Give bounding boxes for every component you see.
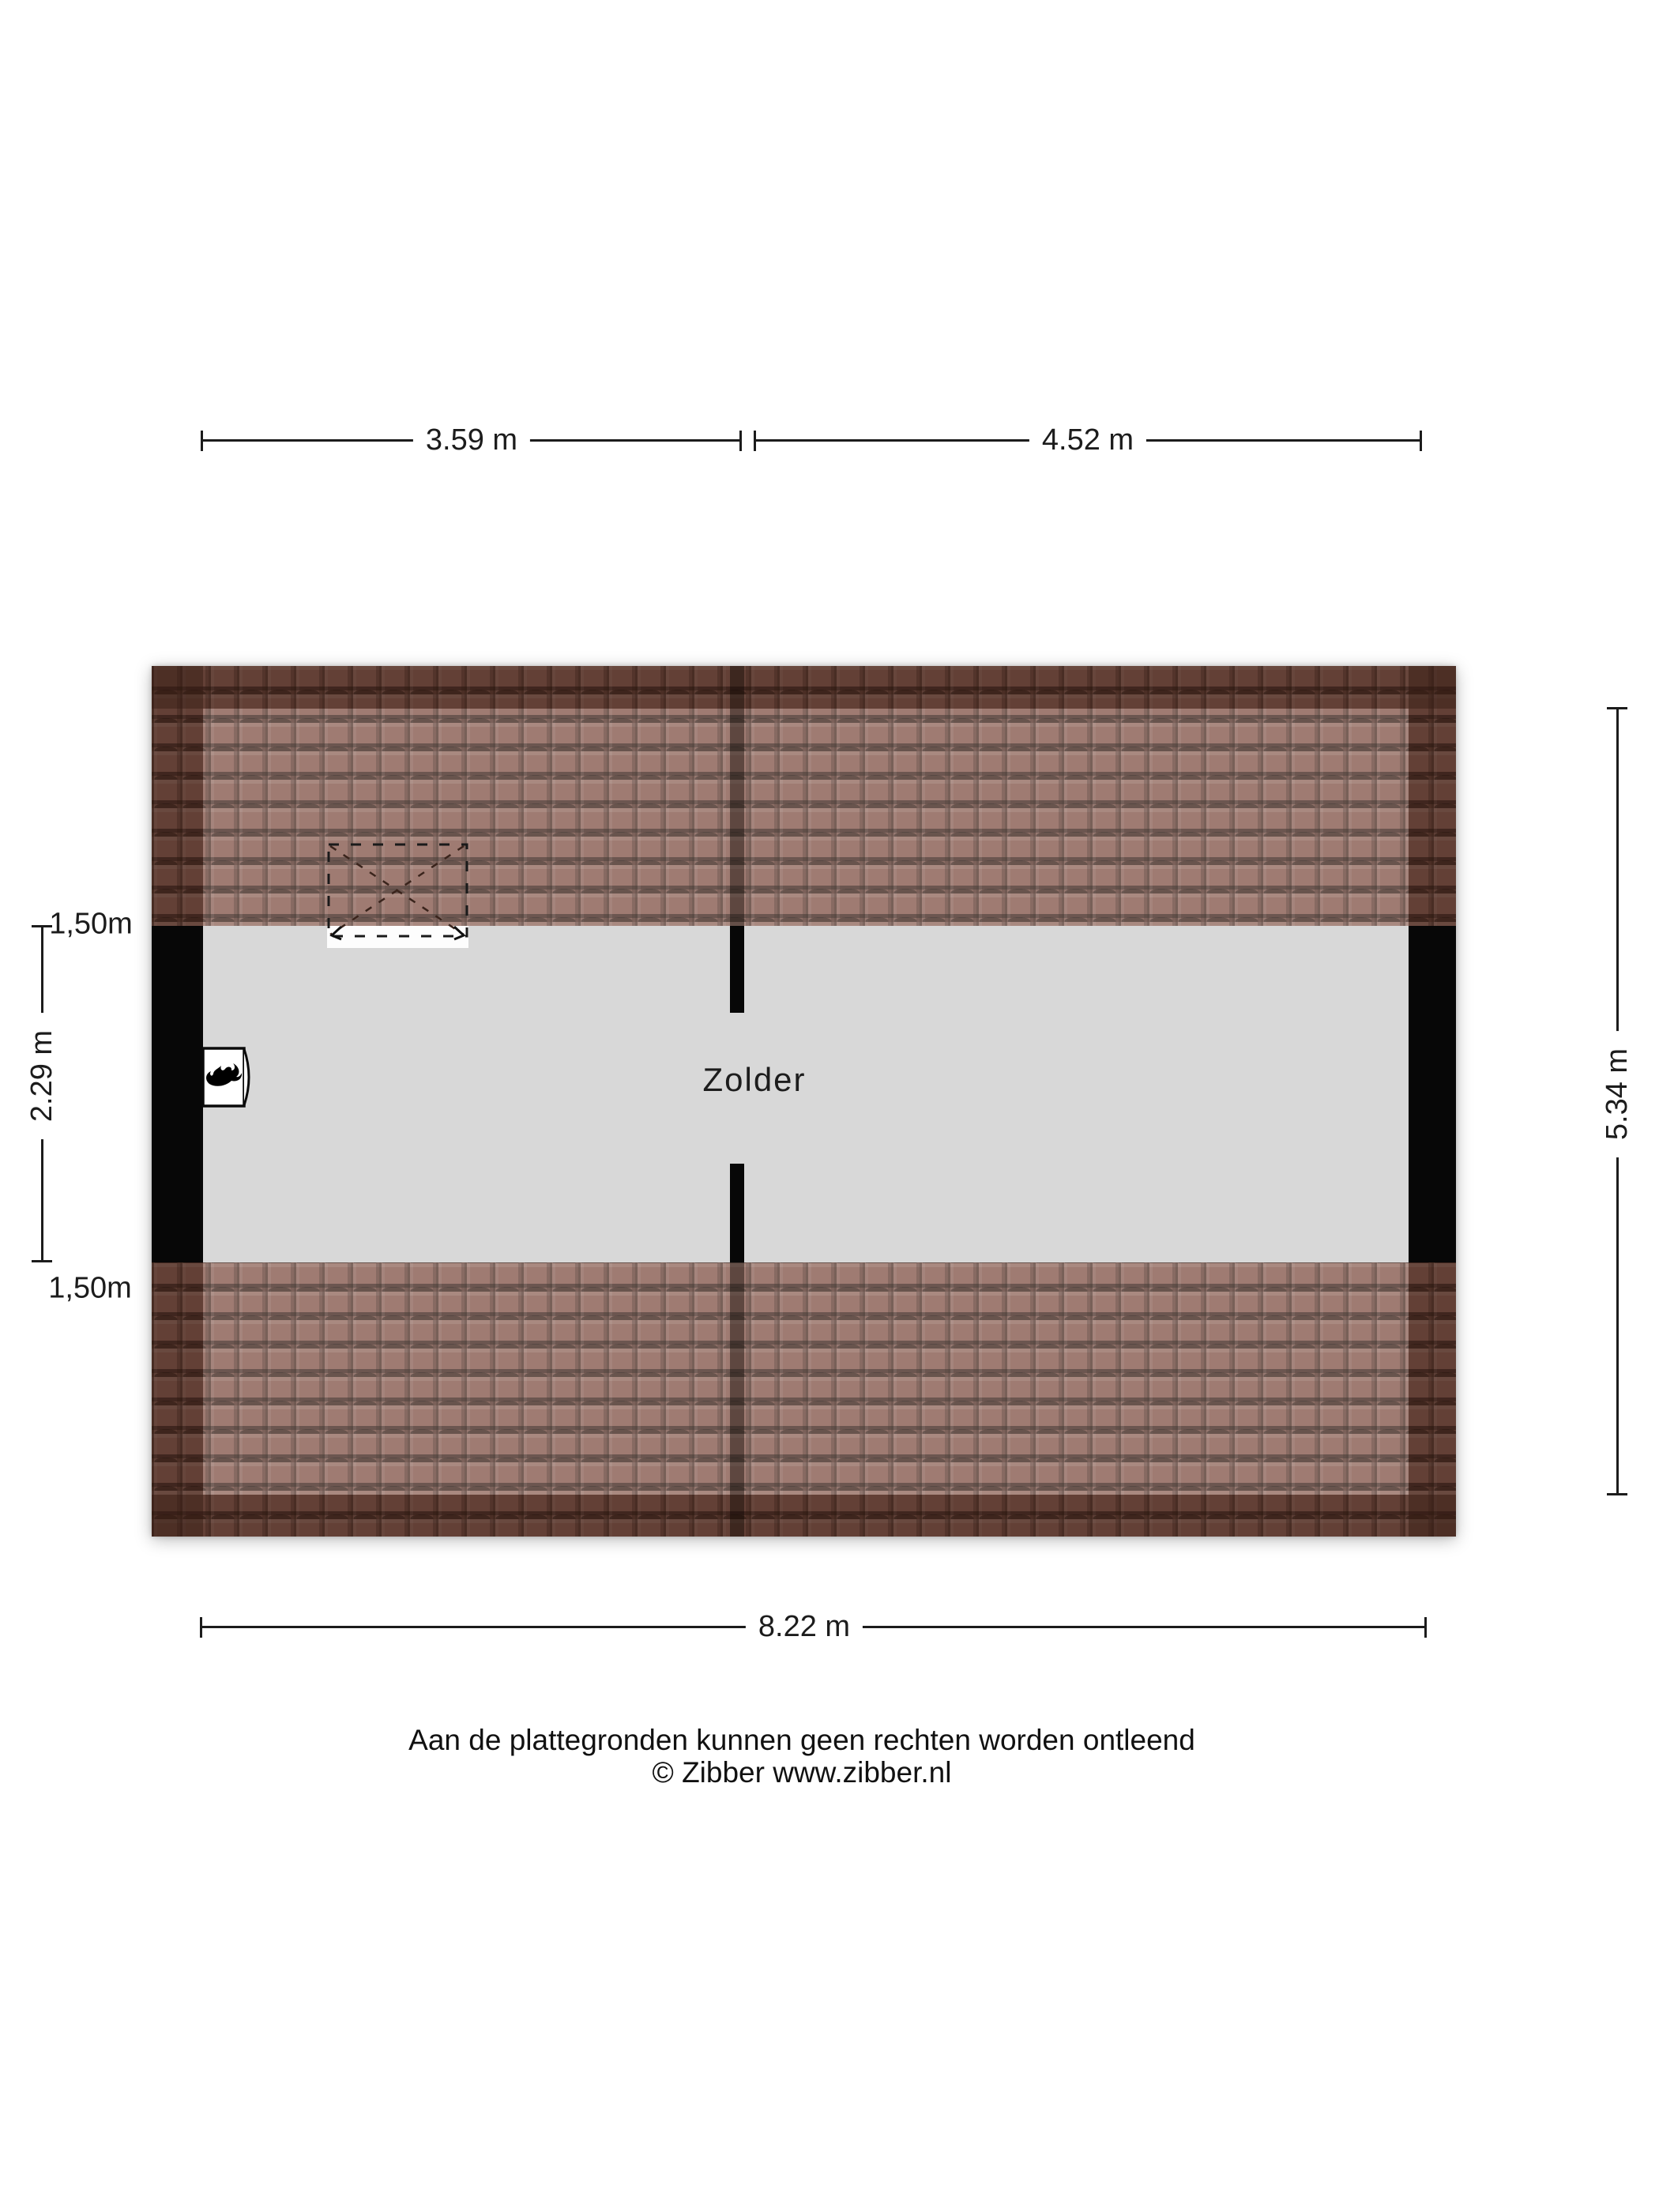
wall-center-lower-stub xyxy=(730,1164,744,1262)
wall-right xyxy=(1409,926,1456,1262)
flame-icon xyxy=(201,1047,254,1108)
footer-copyright: © Zibber www.zibber.nl xyxy=(653,1756,952,1789)
dim-tick xyxy=(1424,1617,1427,1638)
roof-window xyxy=(327,843,468,948)
dim-label-right: 5.34 m xyxy=(1600,1031,1636,1157)
dim-tick xyxy=(754,431,756,451)
dim-tick xyxy=(1607,1493,1627,1495)
attic-floorplan xyxy=(152,666,1456,1537)
clearance-label-bottom: 1,50m xyxy=(48,1272,132,1306)
boiler-unit xyxy=(201,1047,254,1108)
roof-eaves-band-top xyxy=(152,666,1456,709)
dim-tick xyxy=(739,431,742,451)
dim-tick xyxy=(201,431,203,451)
footer-disclaimer: Aan de plattegronden kunnen geen rechten… xyxy=(408,1724,1195,1757)
room-name-label: Zolder xyxy=(702,1061,806,1099)
roof-window-dashed-outline-icon xyxy=(327,843,468,948)
wall-left xyxy=(152,926,203,1262)
roof-eaves-band-bottom xyxy=(152,1495,1456,1537)
center-wall-under-roof-bottom xyxy=(730,1262,744,1537)
dim-label-bottom: 8.22 m xyxy=(746,1609,863,1646)
dim-label-top-left: 3.59 m xyxy=(413,423,530,459)
wall-center-upper-stub xyxy=(730,926,744,1013)
dim-tick xyxy=(1420,431,1422,451)
dim-tick xyxy=(200,1617,202,1638)
dim-tick xyxy=(32,1260,52,1262)
dim-label-left: 2.29 m xyxy=(24,1013,61,1139)
dim-tick xyxy=(1607,707,1627,709)
center-wall-under-roof-top xyxy=(730,666,744,926)
dim-label-top-right: 4.52 m xyxy=(1029,423,1146,459)
floorplan-page: 3.59 m 4.52 m 8.22 m 2.29 m 1,50m 1,50m … xyxy=(0,0,1659,2212)
clearance-label-top: 1,50m xyxy=(49,908,133,942)
